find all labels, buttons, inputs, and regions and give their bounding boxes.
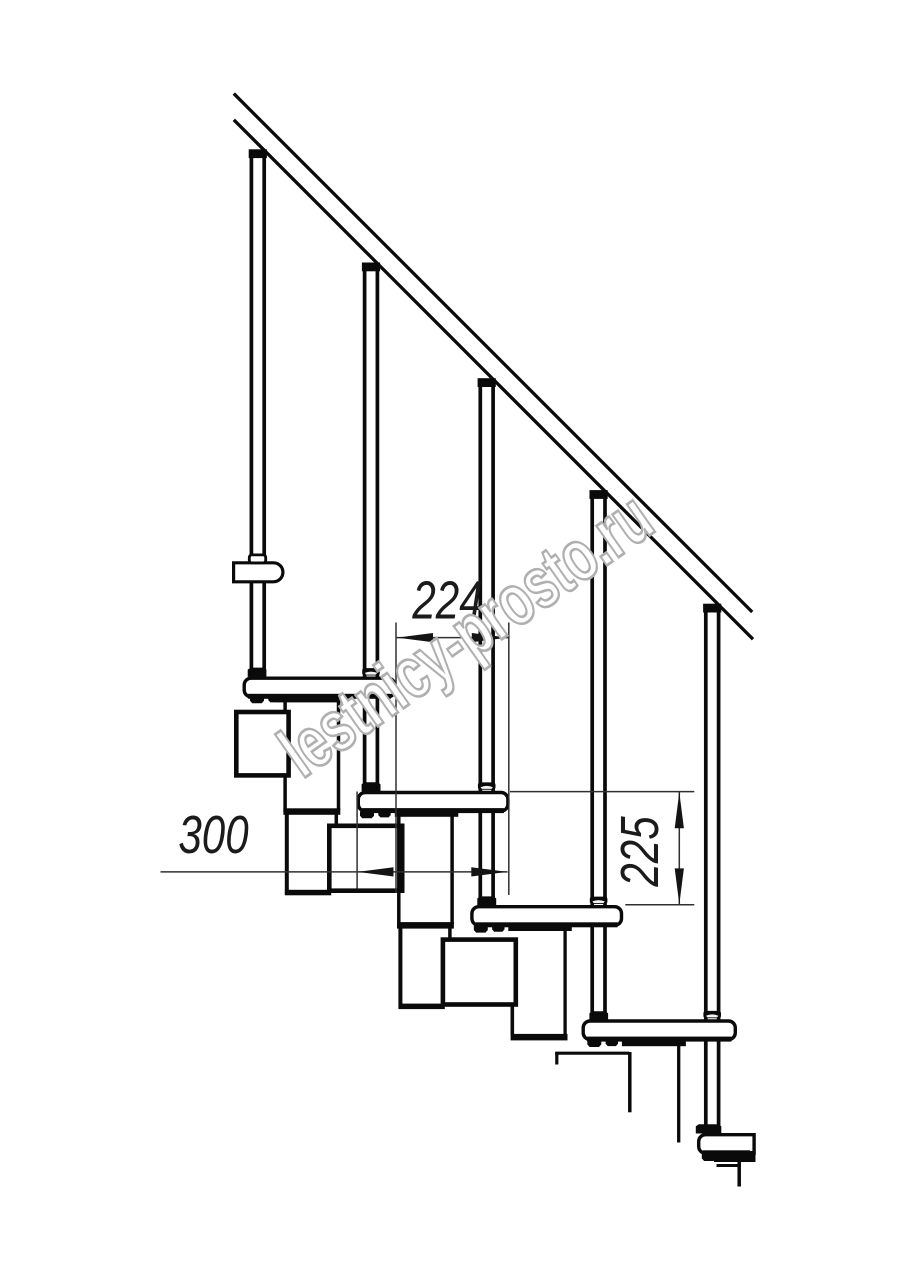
svg-text:300: 300 [178, 805, 248, 865]
svg-text:225: 225 [610, 815, 670, 887]
